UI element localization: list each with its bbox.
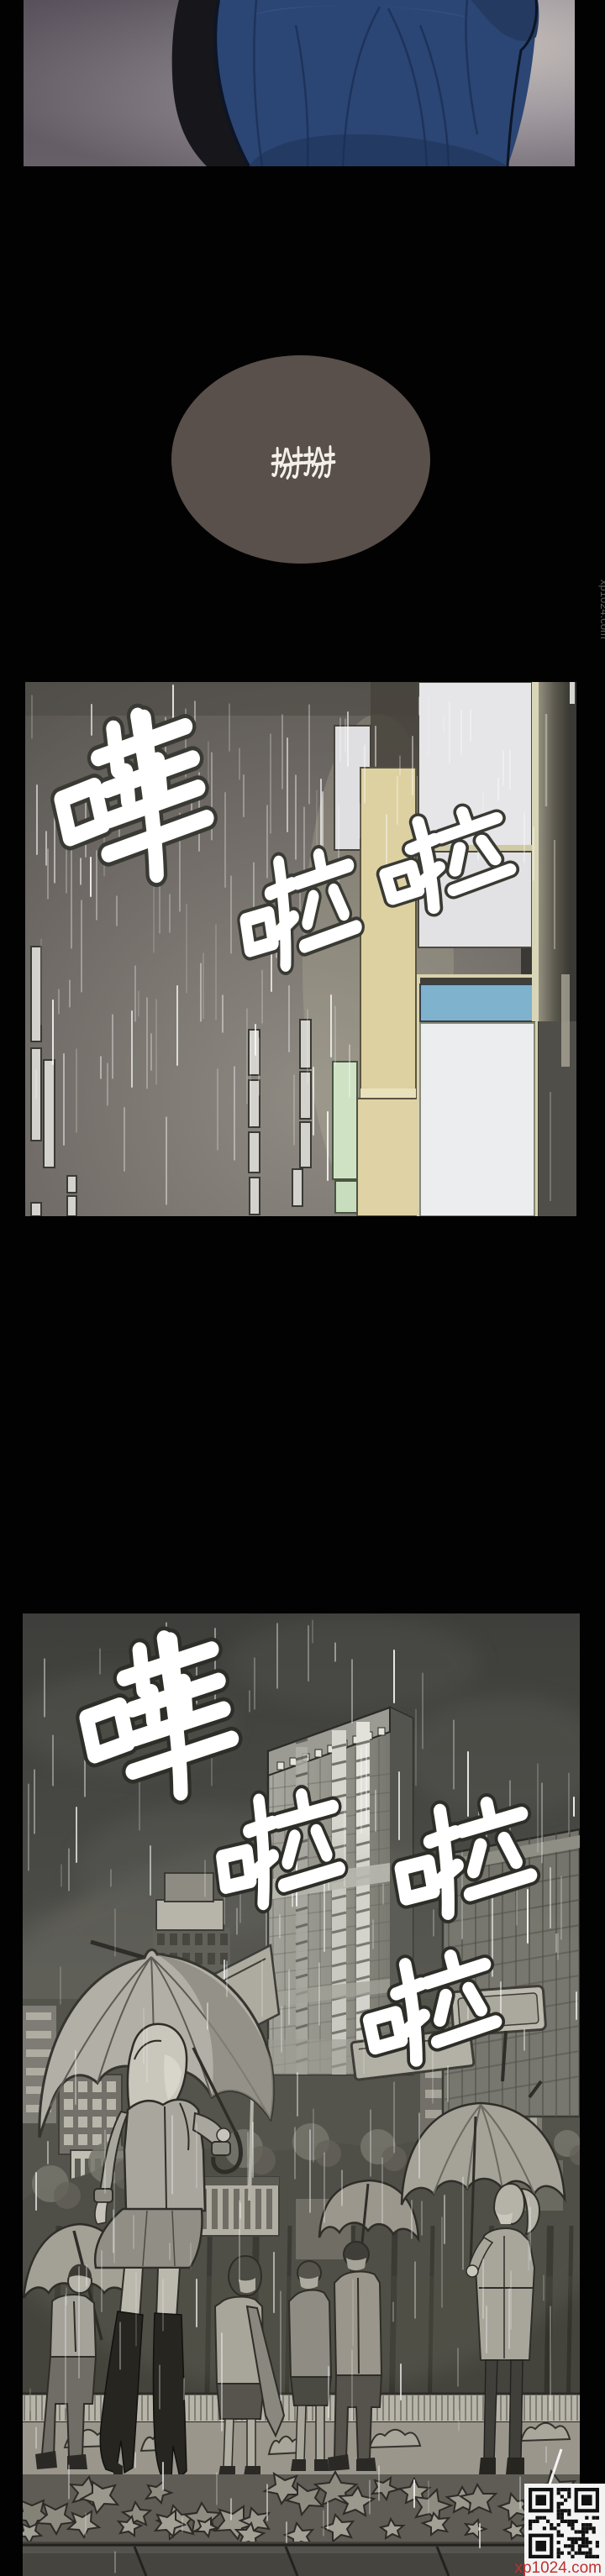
svg-text:xp1024.com: xp1024.com <box>598 580 605 639</box>
svg-text:xp1024.com: xp1024.com <box>514 2559 602 2576</box>
